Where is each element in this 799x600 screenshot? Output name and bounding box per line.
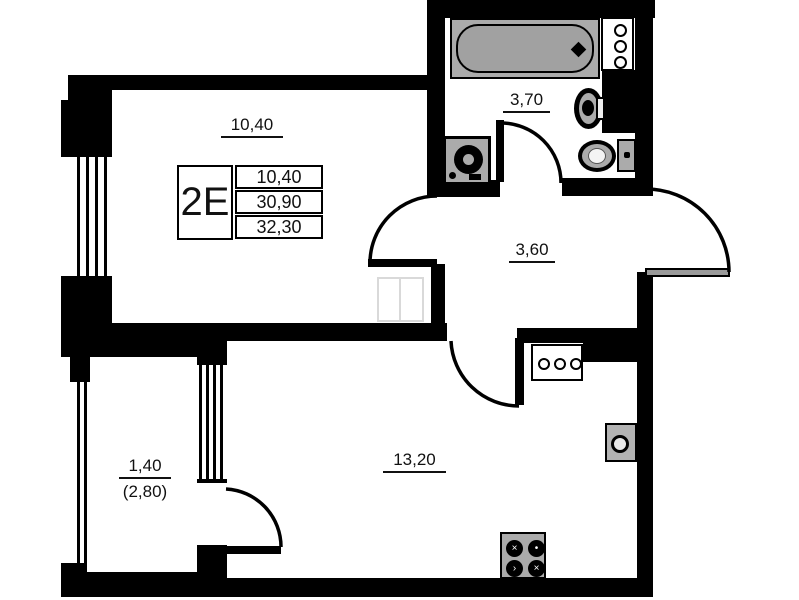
window-livingroom-glazing-line [86,156,89,277]
unit-info-table: 2E 10,40 30,90 32,30 [177,165,323,240]
stove-burner: › [506,560,523,577]
window-balcony-kitchen-glazing-line [199,365,202,479]
burner-mark: × [512,544,518,554]
kitchen-area-label: 13,20 [383,450,446,473]
burner-mark: • [535,544,539,554]
kitchen-door-arc [451,341,519,406]
wall-balcony-window-jamb-top [197,341,227,365]
bathroom-area-label: 3,70 [503,90,550,113]
balcony-door-arc [226,489,281,547]
bathroom-door-leaf [496,120,504,182]
entrance-door-arc [646,189,729,272]
vent-grille-icon [601,17,634,71]
window-balcony-kitchen-glazing-line [206,365,209,479]
bathroom-door-arc [501,123,561,183]
washer-drum [454,145,483,174]
washer-knob [449,172,456,179]
wall-balcony-corner-block [61,563,87,597]
toilet-seat [588,148,606,164]
window-balcony-outer-glazing-line [77,382,80,563]
livingroom-door-arc [370,196,437,263]
wall-balcony-window-sill [197,479,227,483]
vent-hole [614,40,627,53]
balcony-area-label: 1,40 [119,456,171,479]
panel-hole [538,358,550,370]
unit-type-cell: 2E [177,165,233,240]
vent-hole [614,24,627,37]
livingroom-door-leaf [368,259,437,267]
window-livingroom-glazing-line [104,156,107,277]
kitchen-sink-icon [605,423,637,462]
washing-machine-icon [443,136,491,185]
washer-detail [469,174,481,180]
electrical-panel-icon [531,344,583,381]
hallway-area-label: 3,60 [509,240,555,263]
vent-hole [614,56,627,69]
livingroom-area-label: 10,40 [221,115,283,138]
bathtub-icon [450,18,600,79]
stove-icon: × • › × [500,532,546,579]
window-balcony-kitchen-glazing-line [220,365,223,479]
wall-livingroom-kitchen [197,323,447,341]
stove-burner: × [528,560,545,577]
panel-hole [570,358,582,370]
window-balcony-outer-glazing-line [84,382,87,563]
toilet-flush-button [624,152,630,158]
panel-hole [554,358,566,370]
entrance-door-leaf [645,268,730,277]
unit-stat-total-area: 32,30 [235,215,323,239]
unit-stat-room-area: 10,40 [235,165,323,189]
toilet-bowl-icon [578,140,616,172]
burner-mark: › [513,564,516,574]
window-balcony-kitchen-glazing-line [213,365,216,479]
wall-left-step [61,100,69,157]
wall-left-upper [68,75,112,157]
wall-livingroom-top [70,75,430,90]
window-livingroom-glazing-line [95,156,98,277]
unit-stats-column: 10,40 30,90 32,30 [235,165,323,240]
wall-hall-livingroom-lower [431,264,445,341]
burner-mark: × [534,564,540,574]
washer-drum-core [463,154,474,165]
wall-balcony-post [70,357,90,382]
balcony-door-leaf [227,546,281,554]
sink-drain [582,100,594,116]
stove-burner: × [506,540,523,557]
wardrobe-ghost-icon [377,277,424,322]
unit-stat-living-area: 30,90 [235,190,323,214]
bathroom-sink-pedestal [596,97,605,120]
toilet-tank-icon [617,139,636,172]
kitchen-sink-basin [611,435,629,453]
floor-plan: × • › × 2E 10,40 30,90 32,30 10,40 3,70 … [0,0,799,600]
stove-burner: • [528,540,545,557]
wall-hall-kitchen-thick [583,328,653,362]
wall-hall-kitchen-thin [517,328,583,343]
balcony-full-area-label: (2,80) [110,482,180,502]
wall-duct-bump [602,70,653,133]
kitchen-door-leaf [515,338,524,405]
wall-bathroom-top [427,0,655,18]
wardrobe-ghost-divider [399,279,401,320]
window-livingroom-glazing-line [77,156,80,277]
wall-bottom-kitchen [227,578,653,597]
wall-right-lower [637,272,653,597]
